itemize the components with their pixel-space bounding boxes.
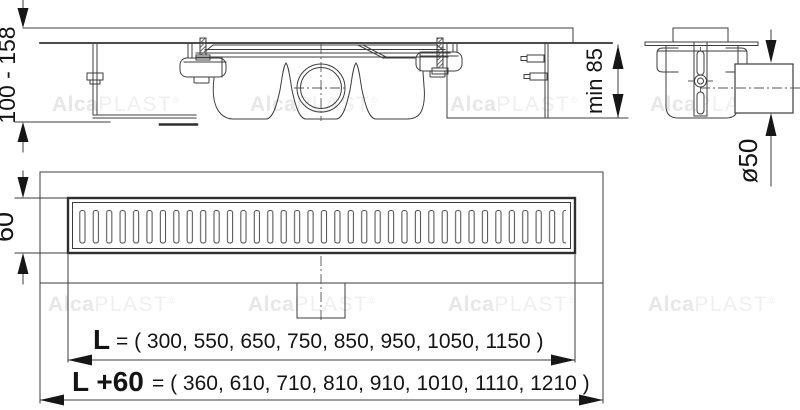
outlet-centerlines <box>294 44 348 121</box>
total-length-label: L +60 <box>72 366 144 397</box>
technical-drawing-svg: 100 - 158 min 85 <box>0 0 800 410</box>
leg-bolt <box>87 73 103 80</box>
min-depth-label: min 85 <box>582 48 607 114</box>
arrow-right-icon <box>579 395 603 406</box>
arrow-down-icon <box>766 40 777 63</box>
arrow-up-icon <box>18 122 29 142</box>
leg-bolt <box>527 55 544 62</box>
channel-slope <box>358 45 415 58</box>
width-dimension-label: 60 <box>0 212 19 242</box>
riser-profile <box>673 28 728 42</box>
leg-bolt-tip <box>521 57 527 61</box>
arrow-left-icon <box>40 395 64 406</box>
leg-bolt <box>530 73 547 80</box>
arrow-left-icon <box>68 355 92 366</box>
arrow-down-icon <box>18 8 29 28</box>
arrow-up-icon <box>613 45 624 69</box>
strap-slot <box>697 51 704 75</box>
strap-slot <box>697 92 704 114</box>
length-label: L <box>93 324 110 355</box>
grate-slots <box>79 210 566 244</box>
arrow-up-icon <box>18 253 29 274</box>
top-view: 60 <box>0 171 603 322</box>
leg-bolt-nut <box>90 80 100 84</box>
arrow-down-icon <box>18 177 29 198</box>
side-view: 100 - 158 min 85 <box>0 0 628 152</box>
leg-bolt-tip <box>524 75 530 79</box>
leveling-rod-right <box>437 38 443 68</box>
trap-flange <box>645 42 758 46</box>
arrow-up-icon <box>766 113 777 136</box>
channel-rim-lines <box>196 45 450 57</box>
pipe-diameter-label: ø50 <box>733 139 763 184</box>
leg-profile <box>93 43 196 118</box>
leveling-rod-left <box>200 38 206 55</box>
technical-drawing-page: AlcaPLAST® AlcaPLAST® AlcaPLAST® AlcaPLA… <box>0 0 800 410</box>
dimension-lines <box>15 0 110 152</box>
min-depth-dimension: min 85 <box>582 45 624 118</box>
length-dimension: L = ( 300, 550, 650, 750, 850, 950, 1050… <box>68 255 575 366</box>
length-values: = ( 300, 550, 650, 750, 850, 950, 1050, … <box>116 330 544 353</box>
arrow-down-icon <box>613 94 624 118</box>
height-dimension-label: 100 - 158 <box>0 26 20 123</box>
strap-screw <box>695 75 707 87</box>
trap-body-outline <box>213 63 424 119</box>
width-dimension: 60 <box>0 171 68 284</box>
floor-surface-line <box>23 28 573 43</box>
total-length-values: = ( 360, 610, 710, 810, 910, 1010, 1110,… <box>152 372 590 395</box>
trap-clip-left <box>657 48 678 72</box>
arrow-right-icon <box>551 355 575 366</box>
support-leg-left <box>87 43 197 125</box>
section-view: ø50 <box>645 28 800 186</box>
outlet-pipe <box>735 64 793 113</box>
